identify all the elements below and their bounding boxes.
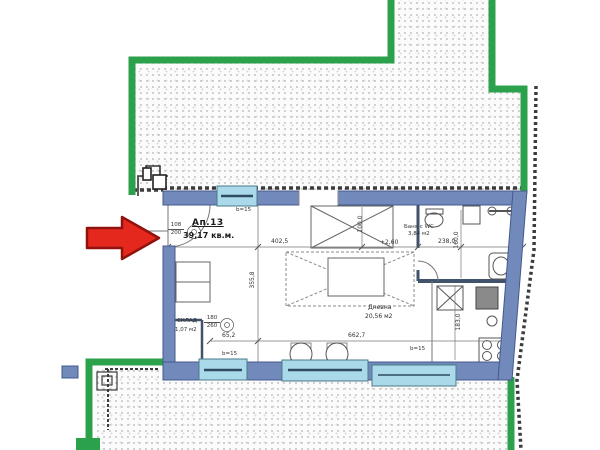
dim-kitchen-depth: 183,0 [456, 305, 464, 339]
location-arrow-icon [87, 217, 159, 259]
living-room-name: Дневна [368, 305, 391, 312]
dim-bottom-total: 662,7 [348, 333, 365, 340]
wall-thickness-storage: b=15 [222, 351, 237, 357]
storage-area: 1,07 м2 [175, 327, 197, 333]
floor-plan-canvas: Ап.13 39,17 кв.м. 108 200 180 260 Дневна… [0, 0, 600, 450]
plan-drawing [0, 0, 600, 450]
dim-storage-width: 65,2 [222, 333, 235, 340]
dim-bath-depth: 160,0 [454, 223, 462, 257]
bathroom-area: 3,84 м2 [408, 231, 430, 237]
dim-level: +2,60 [380, 240, 398, 247]
entry-door-spec: 108 200 [168, 222, 184, 236]
dim-living-width: 402,5 [271, 239, 288, 246]
wall-thickness-bottom: b=15 [410, 346, 425, 352]
apartment-total-area: 39,17 кв.м. [183, 231, 234, 240]
storage-name: СКЛАД [177, 318, 197, 324]
bathroom-name: Баня с WC [404, 224, 434, 230]
storage-door-spec: 180 260 [204, 315, 220, 329]
living-room-area: 20,56 м2 [365, 314, 392, 321]
dim-bed-zone: 100,0 [358, 207, 366, 241]
storage-door-width: 180 [204, 315, 220, 323]
entry-door-width: 108 [168, 222, 184, 230]
apartment-number: Ап.13 [192, 218, 224, 228]
wall-thickness-top: b=15 [236, 207, 251, 213]
storage-door-height: 260 [204, 323, 220, 330]
elevator-shaft [62, 166, 168, 378]
dim-living-depth: 355,8 [250, 263, 258, 297]
entry-door-height: 200 [168, 230, 184, 237]
